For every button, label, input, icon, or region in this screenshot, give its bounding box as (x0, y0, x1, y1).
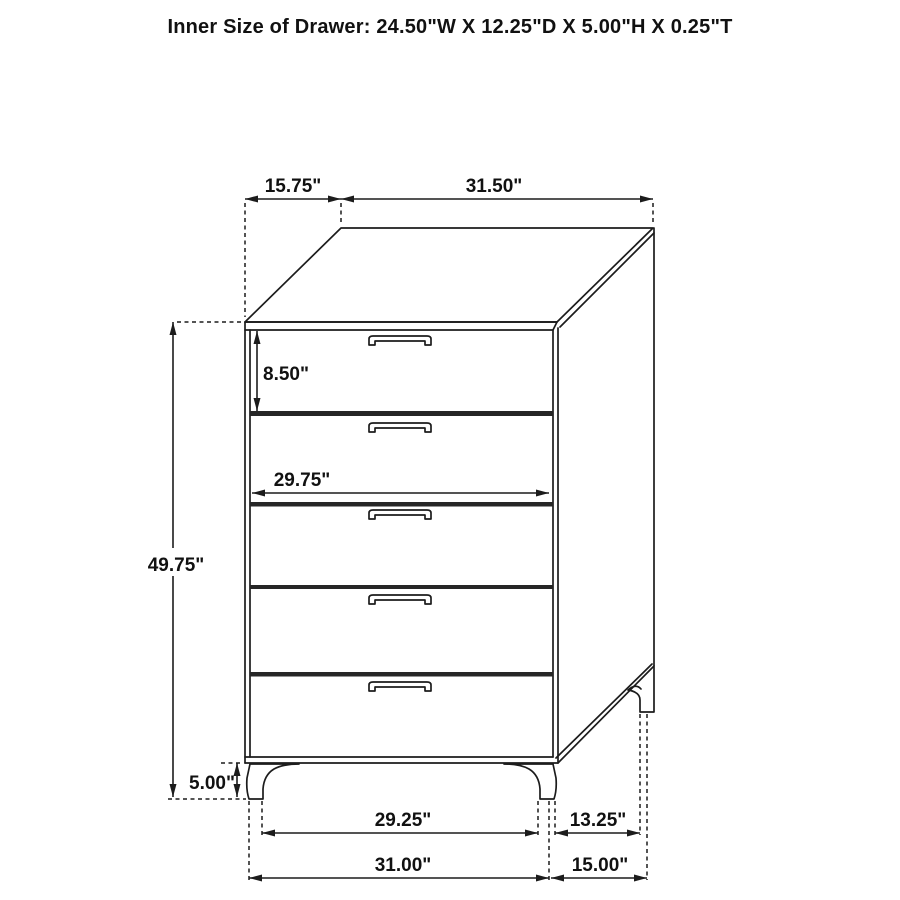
front-left-leg (247, 764, 299, 799)
dim-label-top-width: 31.50" (466, 176, 523, 197)
drawer-handle-icon (369, 682, 431, 691)
chest-top-face (245, 228, 653, 322)
dim-overall-height: 49.75" (144, 322, 206, 797)
drawer-separator (250, 411, 553, 416)
dim-top-width: 31.50" (341, 176, 653, 199)
dim-label-top-depth: 15.75" (265, 176, 322, 197)
drawer-separator (250, 585, 553, 589)
dim-leg-height: 5.00" (189, 763, 237, 797)
dim-label-drawer-height: 8.50" (263, 364, 309, 385)
drawer-handles (369, 336, 431, 691)
drawer-handle-icon (369, 336, 431, 345)
chest-drawing (245, 228, 654, 799)
dim-label-front-feet-inner-span: 29.25" (375, 810, 432, 831)
drawer-handle-icon (369, 510, 431, 519)
chest-front-face (245, 322, 558, 763)
diagram-page: Inner Size of Drawer: 24.50"W X 12.25"D … (0, 0, 900, 900)
dim-label-leg-height: 5.00" (189, 773, 235, 794)
dim-label-side-feet-outer-span: 15.00" (572, 855, 629, 876)
chest-dimension-diagram: 15.75" 31.50" 49.75" 8.50" 29.75" 5.00" (0, 0, 900, 900)
dim-label-overall-height: 49.75" (148, 555, 205, 576)
dim-side-feet-inner-span: 13.25" (555, 810, 640, 833)
dim-label-side-feet-inner-span: 13.25" (570, 810, 627, 831)
dim-front-feet-inner-span: 29.25" (262, 810, 538, 833)
dim-drawer-height: 8.50" (257, 331, 309, 411)
drawer-handle-icon (369, 595, 431, 604)
dim-drawer-width: 29.75" (252, 470, 549, 493)
dim-label-front-feet-outer-span: 31.00" (375, 855, 432, 876)
drawer-separator (250, 672, 553, 677)
drawer-separator (250, 502, 553, 507)
dim-top-depth: 15.75" (245, 176, 341, 199)
front-right-leg (504, 764, 556, 799)
drawer-handle-icon (369, 423, 431, 432)
chest-top-edge-band (245, 322, 557, 330)
dim-front-feet-outer-span: 31.00" (249, 855, 549, 878)
dim-side-feet-outer-span: 15.00" (551, 855, 647, 878)
dim-label-drawer-width: 29.75" (274, 470, 331, 491)
